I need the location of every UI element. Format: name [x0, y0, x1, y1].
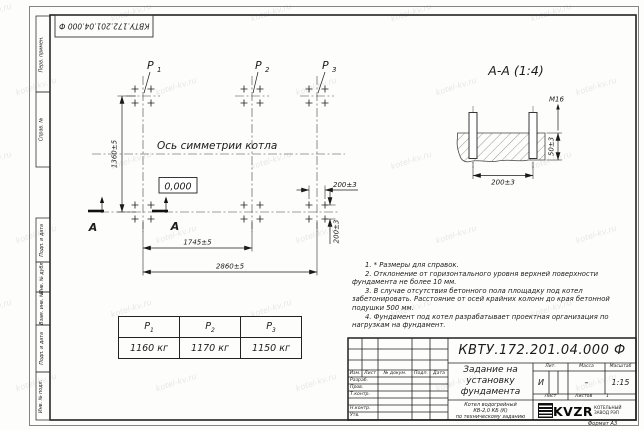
note-2: 2. Отклонение от горизонтального уровня … [352, 270, 614, 287]
anchor-bolt [469, 113, 477, 159]
drawing-sheet: kotel-kv.rukotel-kv.rukotel-kv.rukotel-k… [0, 0, 644, 430]
role-razrab: Разраб. [350, 379, 368, 384]
rev-col-podp: Подп. [412, 371, 430, 377]
rev-col-data: Дата [430, 371, 448, 377]
mass-header: Масса [568, 364, 605, 371]
doc-title: Задание на установку фундамента [448, 363, 533, 400]
scale-value: 1:15 [605, 374, 636, 391]
dim-span1: 1745±5 [183, 239, 212, 247]
kvzr-logo-text: KVZR [553, 404, 593, 419]
scale-header: Масштаб [605, 364, 636, 371]
load-value-p3: 1150 кг [241, 338, 302, 359]
plan-view: P 1 P 2 P 3 Ось симметрии котла 0,000 13… [88, 59, 358, 276]
dim-height: 1360±5 [111, 139, 119, 168]
section-view: А-А (1:4) М16 50±3 200±3 [457, 63, 564, 187]
section-dim-w: 200±3 [491, 179, 515, 187]
rev-col-izm: Изм. [348, 371, 362, 377]
product-name: Котел водогрейный КВ-2,0 КБ (К) по техни… [448, 401, 533, 420]
notes-block: 1. * Размеры для справок. 2. Отклонение … [352, 261, 614, 330]
doc-number: КВТУ.172.201.04.000 Ф [448, 340, 636, 361]
format-label: Формат А3 [575, 421, 630, 428]
section-dim-h: 50±3 [548, 137, 556, 156]
point-sub-3: 3 [332, 66, 336, 74]
anchor-bolt [529, 113, 537, 159]
rev-col-doc: № докум. [378, 371, 412, 377]
dim-span2: 2860±5 [216, 263, 245, 271]
sheet-label: Лист [533, 394, 568, 400]
load-table-header-p1: P1 [119, 317, 180, 338]
role-prov: Пров. [350, 386, 363, 391]
company-name: КОТЕЛЬНЫЙЗАВОД РЭП [594, 405, 621, 415]
section-letter-1: А [88, 221, 98, 234]
frame-label-vzam-inv: Взам. инв. № [36, 292, 50, 325]
section-title: А-А (1:4) [487, 63, 543, 78]
section-cut-marks: А А [88, 197, 180, 235]
role-utv: Утв. [350, 414, 360, 419]
role-nkontr: Н.контр. [350, 407, 371, 412]
mass-value: – [568, 374, 605, 391]
lit-header: Лит. [533, 364, 568, 371]
section-letter-2: А [170, 220, 180, 233]
load-table-value-row: 1160 кг 1170 кг 1150 кг [119, 338, 302, 359]
frame-label-inv-dubl: Инв. № дубл. [36, 262, 50, 292]
role-tkontr: Т.контр. [350, 393, 370, 398]
load-value-p1: 1160 кг [119, 338, 180, 359]
symmetry-axis-label: Ось симметрии котла [157, 140, 277, 152]
frame-label-inv-podl: Инв. № подл. [36, 372, 50, 420]
frame-label-podp-data-1: Подп. и дата [36, 218, 50, 262]
point-sub-1: 1 [157, 66, 161, 74]
note-4: 4. Фундамент под котел разрабатывает про… [352, 313, 614, 330]
dim-bolt-y: 200±3 [333, 220, 341, 244]
load-table-header-p2: P2 [180, 317, 241, 338]
sheets-value: 1 [606, 395, 609, 400]
sheets-label: Листов [575, 395, 592, 400]
top-stamp-doc-number: КВТУ.172.201.04.000 Ф [55, 15, 153, 37]
load-value-p2: 1170 кг [180, 338, 241, 359]
kvzr-logo-mark [538, 403, 553, 418]
rev-col-list: Лист [362, 371, 378, 377]
frame-label-podp-data-2: Подп. и дата [36, 325, 50, 372]
note-3: 3. В случае отсутствия бетонного пола пл… [352, 287, 614, 313]
lit-value: И [533, 374, 549, 391]
note-1: 1. * Размеры для справок. [352, 261, 614, 270]
elevation-value: 0,000 [164, 182, 191, 193]
load-table-header-row: P1 P2 P3 [119, 317, 302, 338]
point-sub-2: 2 [265, 66, 270, 74]
load-table: P1 P2 P3 1160 кг 1170 кг 1150 кг [118, 316, 302, 359]
dim-bolt-x: 200±3 [333, 181, 357, 189]
load-table-header-p3: P3 [241, 317, 302, 338]
point-label-p3: P [322, 59, 329, 72]
bolt-thread-label: М16 [549, 96, 564, 104]
frame-label-perv-primen: Перв. примен. [36, 16, 50, 92]
point-label-p1: P [147, 59, 154, 72]
point-label-p2: P [255, 59, 262, 72]
frame-label-sprav-no: Справ. № [36, 92, 50, 167]
